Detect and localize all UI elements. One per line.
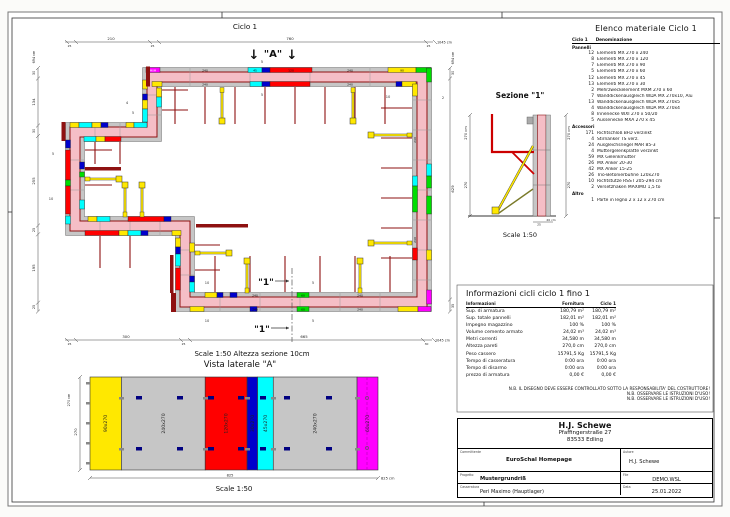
formwork-element <box>66 150 71 180</box>
material-list-header: Ciclo 1 Denominazione <box>572 37 720 44</box>
cycle-info-row: Peso cassero15791,5 Kg15791,5 Kg <box>466 351 616 358</box>
info-ciclo: 100 % <box>584 322 616 329</box>
cycle-info-row: Altezza pareti270,0 cm270,0 cm <box>466 343 616 350</box>
dimension-label: MXM <box>150 69 156 73</box>
dimension-label: 760 <box>286 36 294 41</box>
info-fornitura: 0:00 ora <box>538 365 584 372</box>
info-fornitura: 0,00 € <box>538 372 584 379</box>
drawing-sheet: Ciclo 1 <box>0 0 730 517</box>
formwork-element <box>80 162 85 169</box>
dimension-label: 629 <box>450 185 455 193</box>
formwork-element <box>126 123 134 128</box>
formwork-element <box>427 68 432 82</box>
info-ciclo: 34,580 m <box>584 336 616 343</box>
info-fornitura: 180,79 m² <box>538 308 584 315</box>
progetto-cell: Progetto Mustergrundriß <box>458 471 620 483</box>
vista-panel-label: 60x270 <box>365 415 371 432</box>
dimension-label: 10 <box>49 197 54 201</box>
dimension-label: 30 <box>32 71 36 75</box>
formwork-element <box>143 94 148 100</box>
cycle-info-row: Tempo di disarmo0:00 ora0:00 ora <box>466 365 616 372</box>
info-ciclo: 182,01 m² <box>584 315 616 322</box>
info-label: Impegno magazzino <box>466 322 538 329</box>
formwork-element <box>230 293 237 298</box>
formwork-element <box>141 231 148 236</box>
formwork-element <box>413 84 418 96</box>
cycle-info-row: prezzo di armatura0,00 €0,00 € <box>466 372 616 379</box>
info-fornitura: 24,02 m³ <box>538 329 584 336</box>
material-row: 1Parte in legno 2 x 12 x 270 cm <box>572 198 720 204</box>
formwork-element <box>176 238 181 247</box>
dimension-label: 45 <box>253 69 257 73</box>
arrow-down-icon: ↓ <box>249 48 260 63</box>
formwork-element <box>427 196 432 214</box>
dimension-label: 255 <box>31 177 36 185</box>
info-label: prezzo di armatura <box>466 372 538 379</box>
formwork-element <box>157 88 162 97</box>
info-fornitura: 182,01 m² <box>538 315 584 322</box>
dimension-label: 5 <box>312 319 314 323</box>
formwork-element <box>262 68 270 73</box>
cycle-info-row: Impegno magazzino100 %100 % <box>466 322 616 329</box>
dimension-label: 20 cm <box>546 218 555 222</box>
material-list: Elenco materiale Ciclo 1 Ciclo 1 Denomin… <box>572 24 720 204</box>
dimension-label: 300 <box>122 334 130 339</box>
title-block-company-cell: H.J. Schewe Pfaffingerstraße 27 83533 Ed… <box>458 419 712 448</box>
dimension-label: 270 cm <box>67 393 71 406</box>
dimension-label: 240 <box>347 83 353 87</box>
formwork-element <box>66 180 71 186</box>
dimension-label: 10 <box>205 281 210 285</box>
dimension-label: 825 <box>227 474 234 478</box>
info-fornitura: 270,0 cm <box>538 343 584 350</box>
dimension-label: 240 <box>413 137 417 143</box>
plan-title: Ciclo 1 <box>233 22 257 31</box>
committente-label: Committente <box>460 450 481 454</box>
info-label: Volume cemento armato <box>466 329 538 336</box>
casseratura-value: Peri Maximo (Hauptlager) <box>480 489 544 495</box>
formwork-element <box>70 123 79 128</box>
formwork-element <box>190 282 195 292</box>
dimension-label: 30 <box>32 129 36 133</box>
formwork-element <box>396 82 402 87</box>
formwork-element <box>270 82 310 87</box>
info-ciclo: 0:00 ora <box>584 358 616 365</box>
dimension-label: 35 <box>451 304 455 308</box>
material-col-name: Denominazione <box>596 37 632 42</box>
plan-scale-note: Scale 1:50 Altezza sezione 10cm <box>194 350 309 358</box>
committente-cell: Committente EuroSchal Homepage <box>458 448 620 471</box>
progetto-value: Mustergrundriß <box>480 476 526 482</box>
formwork-element <box>128 217 164 222</box>
formwork-element <box>413 186 418 212</box>
dimension-label: 10 <box>386 95 391 99</box>
vista-panel-label: 240x270 <box>313 413 319 433</box>
dimension-label: 240 <box>202 83 208 87</box>
dimension-label: 240 <box>252 294 258 298</box>
dimension-label: 30 <box>425 342 429 346</box>
platform-bracket <box>527 117 533 124</box>
file-cell: File DEMO.WSL <box>620 471 712 483</box>
formwork-element <box>152 82 162 87</box>
arrow-down-icon: ↓ <box>287 48 298 63</box>
info-label: Tempo di casseratura <box>466 358 538 365</box>
material-col-qty: Ciclo 1 <box>572 37 588 42</box>
cycle-info-title: Informazioni cicli ciclo 1 fino 1 <box>466 288 616 298</box>
formwork-element <box>97 217 110 222</box>
formwork-element <box>80 172 85 177</box>
title-block: H.J. Schewe Pfaffingerstraße 27 83533 Ed… <box>457 418 713 498</box>
formwork-element <box>413 176 418 186</box>
company-name: H.J. Schewe <box>458 421 712 430</box>
progetto-label: Progetto <box>460 473 474 477</box>
dimension-label: 120 <box>288 69 294 73</box>
info-label: Metri correnti <box>466 336 538 343</box>
vista-panel-label: 120x270 <box>224 413 230 433</box>
formwork-element <box>101 123 108 128</box>
svg-text:5: 5 <box>261 60 263 64</box>
col-ciclo: Ciclo 1 <box>584 301 616 306</box>
data-value: 25.01.2022 <box>621 489 712 495</box>
material-name: Versetzhaken MAXIMO 1,5 to <box>597 185 720 191</box>
dimension-label: 134 <box>31 98 36 106</box>
nb-note: N.B. OSSERVARE LE ISTRUZIONI D'USO! <box>460 396 710 401</box>
svg-text:"1": "1" <box>254 325 270 335</box>
formwork-element <box>128 231 141 236</box>
formwork-element <box>66 186 71 214</box>
info-ciclo: 15791,5 Kg <box>584 351 616 358</box>
dimension-label: 60 <box>301 308 305 312</box>
formwork-element <box>427 176 432 188</box>
nb-notes: N.B. IL DISEGNO DEVE ESSERE CONTROLLATO … <box>460 386 710 402</box>
dimension-label: 5 <box>261 93 263 97</box>
formwork-element <box>398 307 418 312</box>
vista-panels: 90x270240x270120x27030x27045x270240x2706… <box>90 377 378 470</box>
dimension-label: 25 <box>537 223 541 227</box>
casseratura-cell: Casseratura Peri Maximo (Hauptlager) <box>458 483 620 495</box>
dimension-label: 1045 cm <box>435 339 451 343</box>
dimension-label: 25 <box>151 44 155 48</box>
formwork-element <box>105 137 121 142</box>
autore-label: Autore <box>623 450 634 454</box>
info-label: Sup. di armatura <box>466 308 538 315</box>
cycle-info-row: Volume cemento armato24,02 m³24,02 m³ <box>466 329 616 336</box>
company-address2: 83533 Edling <box>458 437 712 444</box>
dimension-label: 270 cm <box>464 126 468 140</box>
info-label: Tempo di disarmo <box>466 365 538 372</box>
formwork-element <box>205 293 217 298</box>
dimension-label: 25 <box>68 44 72 48</box>
formwork-element <box>190 276 195 282</box>
formwork-element <box>190 307 204 312</box>
autore-cell: Autore H.J. Schewe <box>620 448 712 471</box>
formwork-element <box>418 307 431 312</box>
formwork-element <box>176 268 181 290</box>
svg-text:"1": "1" <box>258 278 274 288</box>
vista-panel-label: 90x270 <box>103 415 109 432</box>
cycle-info-row: Metri correnti34,580 m34,580 m <box>466 336 616 343</box>
vista-panel-label: 240x270 <box>161 413 167 433</box>
info-ciclo: 24,02 m³ <box>584 329 616 336</box>
info-fornitura: 15791,5 Kg <box>538 351 584 358</box>
info-fornitura: 100 % <box>538 322 584 329</box>
info-ciclo: 0:00 ora <box>584 365 616 372</box>
cycle-info-row: Sup. di armatura180,79 m²180,79 m² <box>466 308 616 315</box>
vista-panel-label: 30x270 <box>250 415 256 432</box>
info-label: Altezza pareti <box>466 343 538 350</box>
dimension-label: 240 <box>347 69 353 73</box>
casseratura-label: Casseratura <box>460 485 479 489</box>
committente-value: EuroSchal Homepage <box>458 457 620 463</box>
formwork-element <box>190 243 195 252</box>
info-label: Sup. totale pannelli <box>466 315 538 322</box>
dimension-label: 90 <box>400 69 404 73</box>
dimension-label: 25 <box>32 228 36 232</box>
dimension-label: 270 <box>464 181 468 189</box>
dimension-label: 5 <box>132 111 134 115</box>
formwork-element <box>96 137 105 142</box>
dimension-label: 195 <box>31 264 36 272</box>
material-groups: Pannelli12Elementi MX 270 x 2408Elementi… <box>572 45 720 204</box>
dimension-label: 1045 cm <box>437 41 453 45</box>
dimension-label: 665 <box>300 334 308 339</box>
vista-panel-label: 45x270 <box>263 415 269 432</box>
cycle-info-header: Informazioni Fornitura Ciclo 1 <box>466 301 616 308</box>
cycle-info-row: Tempo di casseratura0:00 ora0:00 ora <box>466 358 616 365</box>
formwork-element <box>176 247 181 254</box>
material-qty: 1 <box>572 198 597 204</box>
dimension-label: 25 <box>68 342 72 346</box>
formwork-element <box>157 97 162 107</box>
data-cell: Data 25.01.2022 <box>620 483 712 495</box>
info-label: Peso cassero <box>466 351 538 358</box>
dimension-label: 30 <box>451 71 455 75</box>
formwork-element <box>88 217 97 222</box>
formwork-element <box>85 231 119 236</box>
dimension-label: 240 <box>202 69 208 73</box>
formwork-element <box>172 231 181 236</box>
formwork-element <box>176 254 181 266</box>
dimension-label: 10 <box>205 319 210 323</box>
vista-scale: Scale 1:50 <box>216 485 253 493</box>
dimension-label: 694 cm <box>451 51 455 64</box>
dimension-label: 5 <box>52 152 54 156</box>
dimension-label: 270 cm <box>567 126 571 140</box>
dimension-label: 270 <box>73 428 78 436</box>
material-name: Aussenecke MXA 270 x 45 <box>597 118 720 124</box>
formwork-element <box>250 82 262 87</box>
formwork-element <box>79 123 92 128</box>
dimension-label: 5 <box>312 281 314 285</box>
material-name: Parte in legno 2 x 12 x 270 cm <box>597 198 720 204</box>
col-fornitura: Fornitura <box>538 301 584 306</box>
formwork-element <box>262 82 270 87</box>
autore-value: H.J. Schewe <box>629 459 659 465</box>
dimension-label: 825 cm <box>381 477 395 481</box>
dimension-label: 694 cm <box>32 50 36 63</box>
formwork-element <box>66 216 71 224</box>
formwork-element <box>413 248 418 260</box>
formwork-element <box>134 123 147 128</box>
dimension-label: 25 <box>32 305 36 309</box>
dimension-label: 210 <box>107 36 115 41</box>
vista-title: Vista laterale "A" <box>204 360 277 370</box>
col-informazioni: Informazioni <box>466 301 538 306</box>
dimension-label: 240 <box>357 308 363 312</box>
svg-text:"A": "A" <box>264 49 282 60</box>
formwork-element <box>119 231 128 236</box>
formwork-element <box>92 123 101 128</box>
cycle-info-rows: Sup. di armatura180,79 m²180,79 m²Sup. t… <box>466 308 616 379</box>
info-ciclo: 270,0 cm <box>584 343 616 350</box>
dimension-label: 25 <box>427 44 431 48</box>
formwork-element <box>80 200 85 209</box>
material-list-title: Elenco materiale Ciclo 1 <box>572 24 720 33</box>
dimension-label: 25 <box>182 342 186 346</box>
dimension-label: 270 <box>567 181 571 189</box>
info-fornitura: 34,580 m <box>538 336 584 343</box>
dimension-label: 60 <box>301 294 305 298</box>
formwork-element <box>427 164 432 176</box>
formwork-element <box>143 100 148 109</box>
sezione-scale: Scale 1:50 <box>503 231 537 239</box>
cycle-info-table: Informazioni cicli ciclo 1 fino 1 Inform… <box>466 288 616 379</box>
dimension-label: 240 <box>413 237 417 243</box>
formwork-element <box>164 217 171 222</box>
dimension-label: 240 <box>252 308 258 312</box>
cycle-info-row: Sup. totale pannelli182,01 m²182,01 m² <box>466 315 616 322</box>
formwork-element <box>217 293 223 298</box>
material-row: 2Versetzhaken MAXIMO 1,5 to <box>572 185 720 191</box>
info-fornitura: 0:00 ora <box>538 358 584 365</box>
info-ciclo: 180,79 m² <box>584 308 616 315</box>
info-ciclo: 0,00 € <box>584 372 616 379</box>
formwork-element <box>427 290 432 304</box>
dimension-label: 240 <box>357 294 363 298</box>
dimension-label: 2 <box>442 96 444 100</box>
formwork-element <box>84 137 96 142</box>
formwork-element <box>427 250 432 260</box>
sezione-title: Sezione "1" <box>496 91 545 100</box>
formwork-element <box>66 140 71 148</box>
formwork-element <box>143 109 148 122</box>
